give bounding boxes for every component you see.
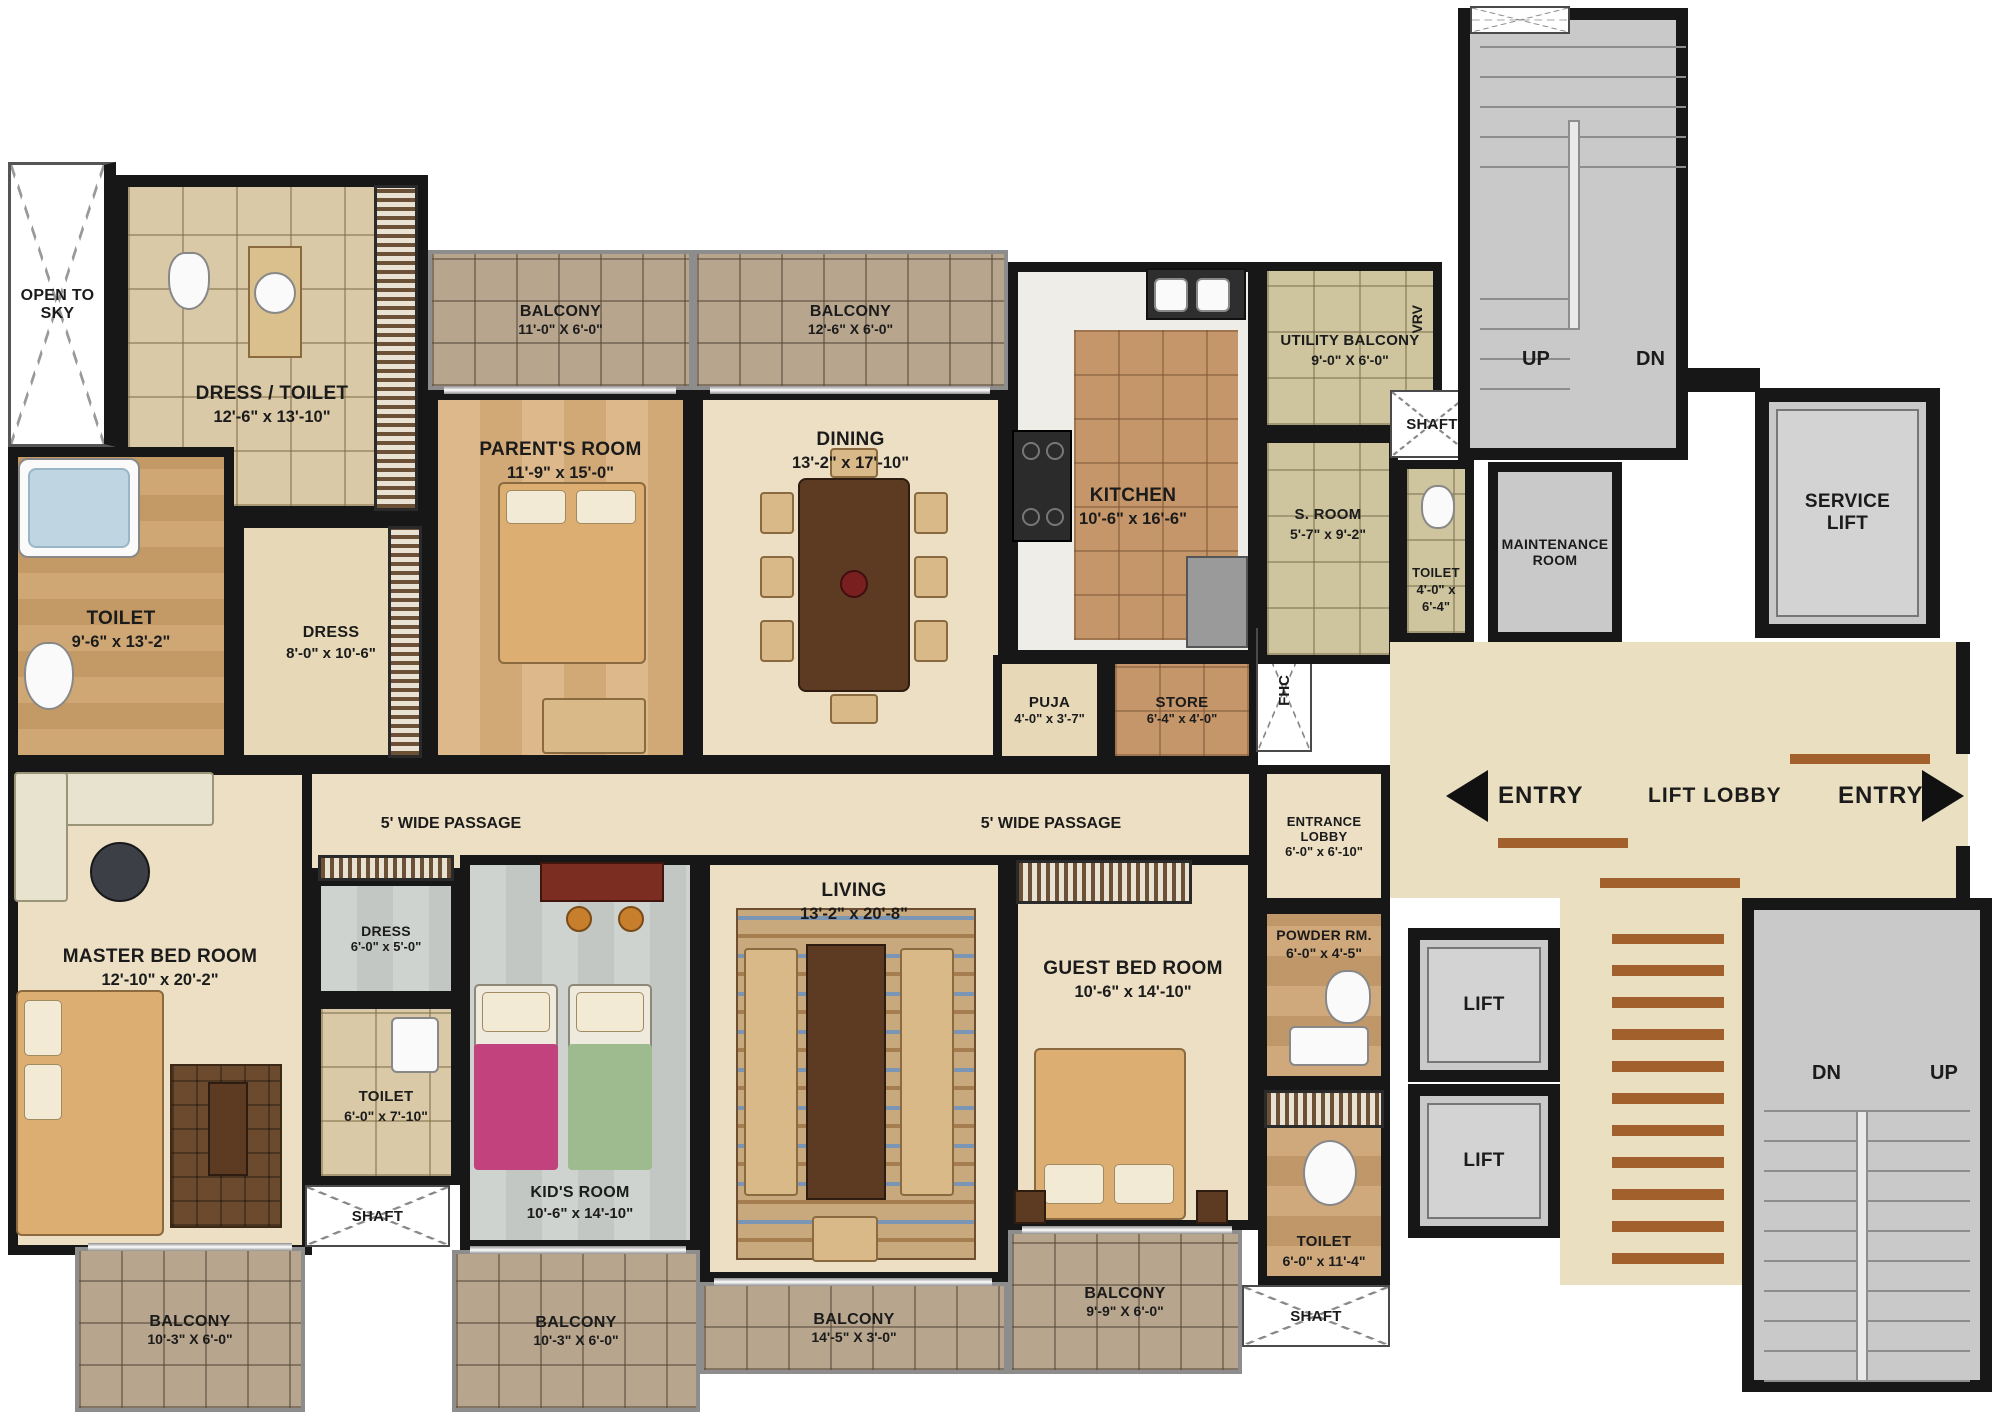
room-dims: 12'-10" x 20'-2" <box>18 970 302 991</box>
room-dims: 4'-0" x 6'-4" <box>1407 582 1465 616</box>
room-label: STORE <box>1156 694 1209 711</box>
pillow-icon <box>506 490 566 524</box>
room-dims: 6'-0" x 6'-10" <box>1285 844 1363 859</box>
balcony-label: BALCONY <box>813 1311 894 1329</box>
room-dims: 12'-6" x 13'-10" <box>128 407 416 428</box>
side-table-icon <box>1196 1190 1228 1224</box>
lift-label: LIFT <box>1463 1150 1504 1172</box>
room-dims: 10'-6" x 14'-10" <box>470 1204 690 1224</box>
room-toilet-master: TOILET 6'-0" x 7'-10" <box>312 1000 460 1185</box>
room-store: STORE 6'-4" x 4'-0" <box>1106 655 1258 765</box>
room-label: S. ROOM <box>1267 505 1389 525</box>
wall-segment <box>1680 368 1760 392</box>
floor-strip <box>1600 878 1740 888</box>
pillow-icon <box>24 1064 62 1120</box>
l-sofa-icon <box>14 772 68 902</box>
room-dims: 13'-2" x 17'-10" <box>703 453 998 474</box>
balcony-kids: BALCONY 10'-3" X 6'-0" <box>452 1250 700 1412</box>
room-dims: 6'-4" x 4'-0" <box>1147 711 1218 726</box>
lift-lobby-upper: ENTRY LIFT LOBBY ENTRY <box>1390 642 1968 898</box>
room-dims: 6'-0" x 4'-5" <box>1267 944 1381 962</box>
sink-icon <box>391 1017 439 1073</box>
balcony-master: BALCONY 10'-3" X 6'-0" <box>75 1247 305 1412</box>
pillow-icon <box>482 992 550 1032</box>
room-dims: 4'-0" x 3'-7" <box>1014 711 1085 726</box>
balcony-guest: BALCONY 9'-9" X 6'-0" <box>1008 1230 1242 1374</box>
balcony-dims: 12'-6" X 6'-0" <box>808 321 893 337</box>
dining-chair-icon <box>760 556 794 598</box>
stair-treads <box>1480 28 1686 168</box>
room-label: TOILET <box>321 1087 451 1107</box>
balcony-label: BALCONY <box>535 1314 616 1332</box>
dining-chair-icon <box>914 492 948 534</box>
lift-label: LIFT <box>1463 994 1504 1016</box>
bathtub-icon <box>18 458 140 558</box>
wardrobe-icon <box>1016 860 1192 904</box>
balcony-label: BALCONY <box>1084 1285 1165 1303</box>
room-puja: PUJA 4'-0" x 3'-7" <box>993 655 1106 765</box>
kids-chair-icon <box>566 906 592 932</box>
wardrobe-icon <box>318 855 454 881</box>
fhc-label: FHC <box>1276 675 1293 706</box>
lift-lobby-lower <box>1560 898 1742 1285</box>
kids-desk-icon <box>540 862 664 902</box>
dining-chair-icon <box>914 620 948 662</box>
balcony-living: BALCONY 14'-5" X 3'-0" <box>700 1282 1008 1374</box>
dining-chair-icon <box>914 556 948 598</box>
lift-lobby-label: LIFT LOBBY <box>1648 784 1782 808</box>
open-to-sky: OPEN TO SKY <box>8 162 116 447</box>
room-dims: 6'-0" x 7'-10" <box>321 1107 451 1125</box>
balcony-dims: 9'-0" X 6'-0" <box>1267 351 1433 369</box>
floor-plan: OPEN TO SKY DRESS / TOILET 12'-6" x 13'-… <box>0 0 2000 1422</box>
sofa-icon <box>744 948 798 1196</box>
balcony-dims: 14'-5" X 3'-0" <box>811 1329 896 1345</box>
dn-label: DN <box>1636 348 1665 371</box>
window-icon <box>470 1246 686 1254</box>
window-icon <box>444 386 676 394</box>
toilet-fixture-icon <box>1325 970 1371 1024</box>
entry-left-label: ENTRY <box>1498 782 1583 810</box>
vent-box <box>1470 6 1570 34</box>
entry-arrow-left-icon <box>1446 770 1488 822</box>
room-dims: 5'-7" x 9'-2" <box>1267 525 1389 543</box>
wardrobe-icon <box>1264 1090 1384 1128</box>
room-dims: 6'-0" x 5'-0" <box>351 939 422 954</box>
sofa-icon <box>900 948 954 1196</box>
sink-icon <box>1289 1026 1369 1066</box>
seat-icon <box>812 1216 878 1262</box>
up-label: UP <box>1930 1062 1958 1085</box>
maintenance-room: MAINTENANCE ROOM <box>1488 462 1622 642</box>
room-dims: 8'-0" x 10'-6" <box>244 644 418 664</box>
floor-strips <box>1612 934 1724 1264</box>
room-label: DRESS <box>244 623 418 644</box>
entry-right-label: ENTRY <box>1838 782 1923 810</box>
kitchen-sink-icon <box>1146 268 1246 320</box>
dn-label: DN <box>1812 1062 1841 1085</box>
shaft-label: SHAFT <box>1406 416 1458 433</box>
room-label: KID'S ROOM <box>470 1183 690 1204</box>
kids-blanket-icon <box>568 1044 652 1170</box>
sink-icon <box>254 272 296 314</box>
room-dims: 11'-9" x 15'-0" <box>438 463 683 484</box>
passage-label: 5' WIDE PASSAGE <box>901 814 1201 835</box>
room-label: TOILET <box>18 607 224 632</box>
balcony-label: UTILITY BALCONY <box>1267 331 1433 351</box>
dining-chair-icon <box>830 694 878 724</box>
service-lift-label: SERVICE LIFT <box>1793 491 1903 535</box>
stair-divider <box>1856 1110 1868 1382</box>
toilet-fixture-icon <box>168 252 210 310</box>
floor-strip <box>1498 838 1628 848</box>
shaft-label: SHAFT <box>352 1208 404 1225</box>
window-icon <box>1022 1226 1232 1234</box>
lift-1: LIFT <box>1408 928 1560 1082</box>
toilet-fixture-icon <box>1421 485 1455 529</box>
coffee-table-icon <box>806 944 886 1200</box>
room-dims: 10'-6" x 16'-6" <box>1018 509 1248 530</box>
balcony-label: BALCONY <box>810 303 891 321</box>
entry-arrow-right-icon <box>1922 770 1964 822</box>
room-label: DRESS / TOILET <box>128 382 416 407</box>
balcony-dims: 10'-3" X 6'-0" <box>147 1331 232 1347</box>
pillow-icon <box>1044 1164 1104 1204</box>
room-label: LIVING <box>710 879 998 904</box>
room-dims: 13'-2" x 20'-8" <box>710 904 998 925</box>
room-dress-master: DRESS 6'-0" x 5'-0" <box>312 877 460 1000</box>
room-label: KITCHEN <box>1018 484 1248 509</box>
room-dims: 9'-6" x 13'-2" <box>18 632 224 653</box>
balcony-dims: 9'-9" X 6'-0" <box>1086 1303 1164 1319</box>
shaft-bottom-left-box: SHAFT <box>305 1185 450 1247</box>
desk-icon <box>208 1082 248 1176</box>
service-lift: SERVICE LIFT <box>1755 388 1940 638</box>
dining-chair-icon <box>760 620 794 662</box>
room-label: TOILET <box>1407 565 1465 582</box>
room-servant: S. ROOM 5'-7" x 9'-2" <box>1258 434 1398 664</box>
vrv-label: VRV <box>1409 305 1425 334</box>
kids-chair-icon <box>618 906 644 932</box>
refrigerator-icon <box>1186 556 1248 648</box>
open-to-sky-label: OPEN TO SKY <box>11 287 104 323</box>
stair-treads <box>1480 270 1570 390</box>
room-label: PARENT'S ROOM <box>438 438 683 463</box>
room-label: GUEST BED ROOM <box>1018 957 1248 982</box>
kids-blanket-icon <box>474 1044 558 1170</box>
entrance-lobby: ENTRANCE LOBBY 6'-0" x 6'-10" <box>1258 765 1390 907</box>
lift-2: LIFT <box>1408 1084 1560 1238</box>
shaft-label: SHAFT <box>1290 1308 1342 1325</box>
balcony-label: BALCONY <box>149 1313 230 1331</box>
centerpiece-icon <box>840 570 868 598</box>
balcony-dining: BALCONY 12'-6" X 6'-0" <box>693 250 1008 390</box>
x-mark <box>1472 8 1568 32</box>
balcony-parents: BALCONY 11'-0" X 6'-0" <box>428 250 693 390</box>
shaft-bottom-right-box: SHAFT <box>1242 1285 1390 1347</box>
room-powder: POWDER RM. 6'-0" x 4'-5" <box>1258 905 1390 1085</box>
pillow-icon <box>1114 1164 1174 1204</box>
room-dims: 10'-6" x 14'-10" <box>1018 982 1248 1003</box>
up-label: UP <box>1522 348 1550 371</box>
side-table-icon <box>1014 1190 1046 1224</box>
room-label: ENTRANCE LOBBY <box>1267 814 1381 844</box>
window-icon <box>710 386 990 394</box>
room-dims: 6'-0" x 11'-4" <box>1267 1252 1381 1270</box>
sink-icon <box>1303 1140 1357 1206</box>
room-label: MAINTENANCE ROOM <box>1500 536 1610 568</box>
pillow-icon <box>576 490 636 524</box>
window-icon <box>714 1278 992 1286</box>
room-label: DRESS <box>361 923 411 939</box>
room-label: TOILET <box>1267 1232 1381 1252</box>
wardrobe-icon <box>374 185 418 511</box>
stairs-bottom: DN UP <box>1742 898 1992 1392</box>
wall-segment <box>1956 846 1970 898</box>
window-icon <box>88 1243 292 1251</box>
room-label: POWDER RM. <box>1267 926 1381 944</box>
balcony-dims: 10'-3" X 6'-0" <box>533 1332 618 1348</box>
sofa-icon <box>542 698 646 754</box>
balcony-label: BALCONY <box>520 303 601 321</box>
room-label: MASTER BED ROOM <box>18 945 302 970</box>
room-label: PUJA <box>1029 694 1070 711</box>
stairs-top: UP DN <box>1458 8 1688 460</box>
room-label: DINING <box>703 428 998 453</box>
passage-label: 5' WIDE PASSAGE <box>301 814 601 835</box>
room-toilet-servant: TOILET 4'-0" x 6'-4" <box>1398 460 1474 642</box>
pillow-icon <box>576 992 644 1032</box>
dining-chair-icon <box>760 492 794 534</box>
wall-segment <box>1956 642 1970 754</box>
pillow-icon <box>24 1000 62 1056</box>
balcony-dims: 11'-0" X 6'-0" <box>518 321 603 337</box>
floor-strip <box>1790 754 1930 764</box>
round-table-icon <box>90 842 150 902</box>
